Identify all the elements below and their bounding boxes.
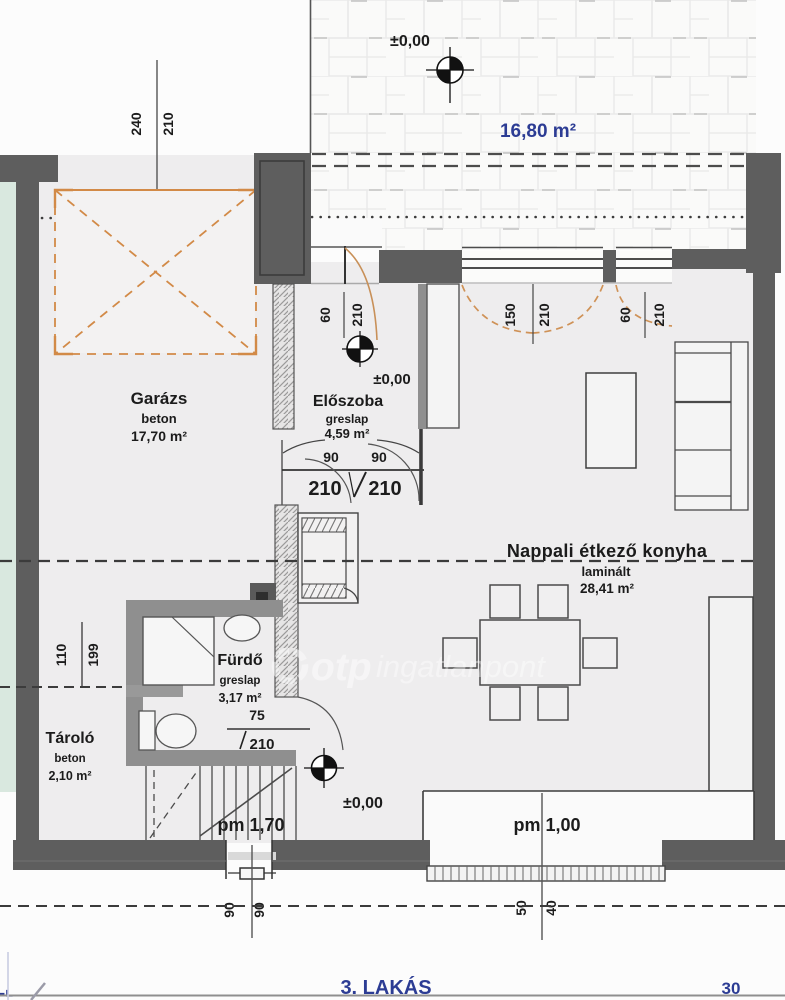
svg-text:210: 210: [160, 112, 176, 136]
svg-text:210: 210: [536, 303, 552, 327]
svg-text:beton: beton: [141, 411, 176, 426]
svg-text:pm 1,00: pm 1,00: [513, 815, 580, 835]
svg-text:17,70 m²: 17,70 m²: [131, 428, 187, 444]
svg-text:40: 40: [543, 900, 559, 916]
svg-text:50: 50: [513, 900, 529, 916]
svg-text:ingatlanpont: ingatlanpont: [376, 649, 546, 684]
svg-text:3,17 m²: 3,17 m²: [218, 691, 261, 705]
svg-text:laminált: laminált: [581, 564, 631, 579]
svg-text:beton: beton: [54, 753, 85, 765]
svg-text:90: 90: [251, 902, 267, 918]
svg-text:60: 60: [317, 307, 333, 323]
svg-text:210: 210: [249, 736, 274, 753]
svg-text:2,10 m²: 2,10 m²: [48, 769, 91, 783]
svg-text:199: 199: [85, 643, 101, 667]
svg-text:60: 60: [617, 307, 633, 323]
svg-text:240: 240: [128, 112, 144, 136]
svg-text:4,59 m²: 4,59 m²: [325, 426, 370, 441]
svg-text:150: 150: [502, 303, 518, 327]
svg-text:210: 210: [651, 303, 667, 327]
svg-text:16,80 m²: 16,80 m²: [500, 121, 576, 142]
svg-text:Fürdő: Fürdő: [217, 652, 263, 669]
svg-text:28,41 m²: 28,41 m²: [580, 581, 635, 596]
svg-text:Tároló: Tároló: [46, 730, 95, 747]
svg-text:90: 90: [323, 449, 339, 465]
svg-text:±0,00: ±0,00: [373, 371, 410, 388]
svg-text:greslap: greslap: [326, 412, 369, 426]
svg-text:110: 110: [53, 643, 69, 666]
svg-text:otp: otp: [311, 646, 372, 689]
svg-text:210: 210: [349, 303, 365, 327]
svg-text:±0,00: ±0,00: [343, 795, 383, 812]
svg-text:greslap: greslap: [220, 675, 261, 687]
svg-text:Garázs: Garázs: [131, 389, 188, 408]
svg-text:pm 1,70: pm 1,70: [217, 815, 284, 835]
svg-text:Előszoba: Előszoba: [313, 393, 383, 410]
svg-text:±0,00: ±0,00: [390, 33, 430, 50]
svg-text:75: 75: [249, 707, 265, 723]
svg-text:210: 210: [308, 478, 341, 500]
svg-text:210: 210: [368, 478, 401, 500]
svg-text:Nappali étkező konyha: Nappali étkező konyha: [507, 541, 708, 561]
svg-text:90: 90: [371, 449, 387, 465]
svg-text:90: 90: [221, 902, 237, 918]
